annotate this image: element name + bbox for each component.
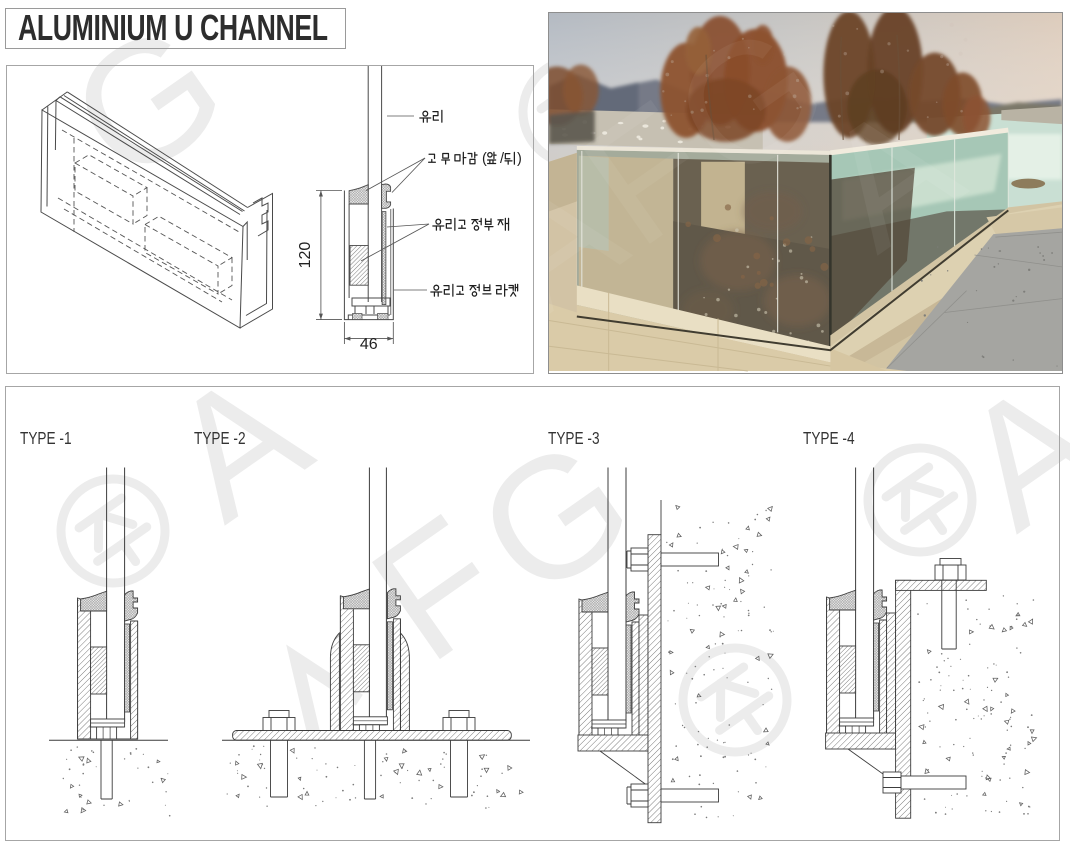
svg-text:TYPE -3: TYPE -3 xyxy=(548,430,600,449)
svg-text:TYPE -2: TYPE -2 xyxy=(194,430,246,449)
svg-text:TYPE -4: TYPE -4 xyxy=(803,430,855,449)
svg-text:TYPE -1: TYPE -1 xyxy=(20,430,72,449)
